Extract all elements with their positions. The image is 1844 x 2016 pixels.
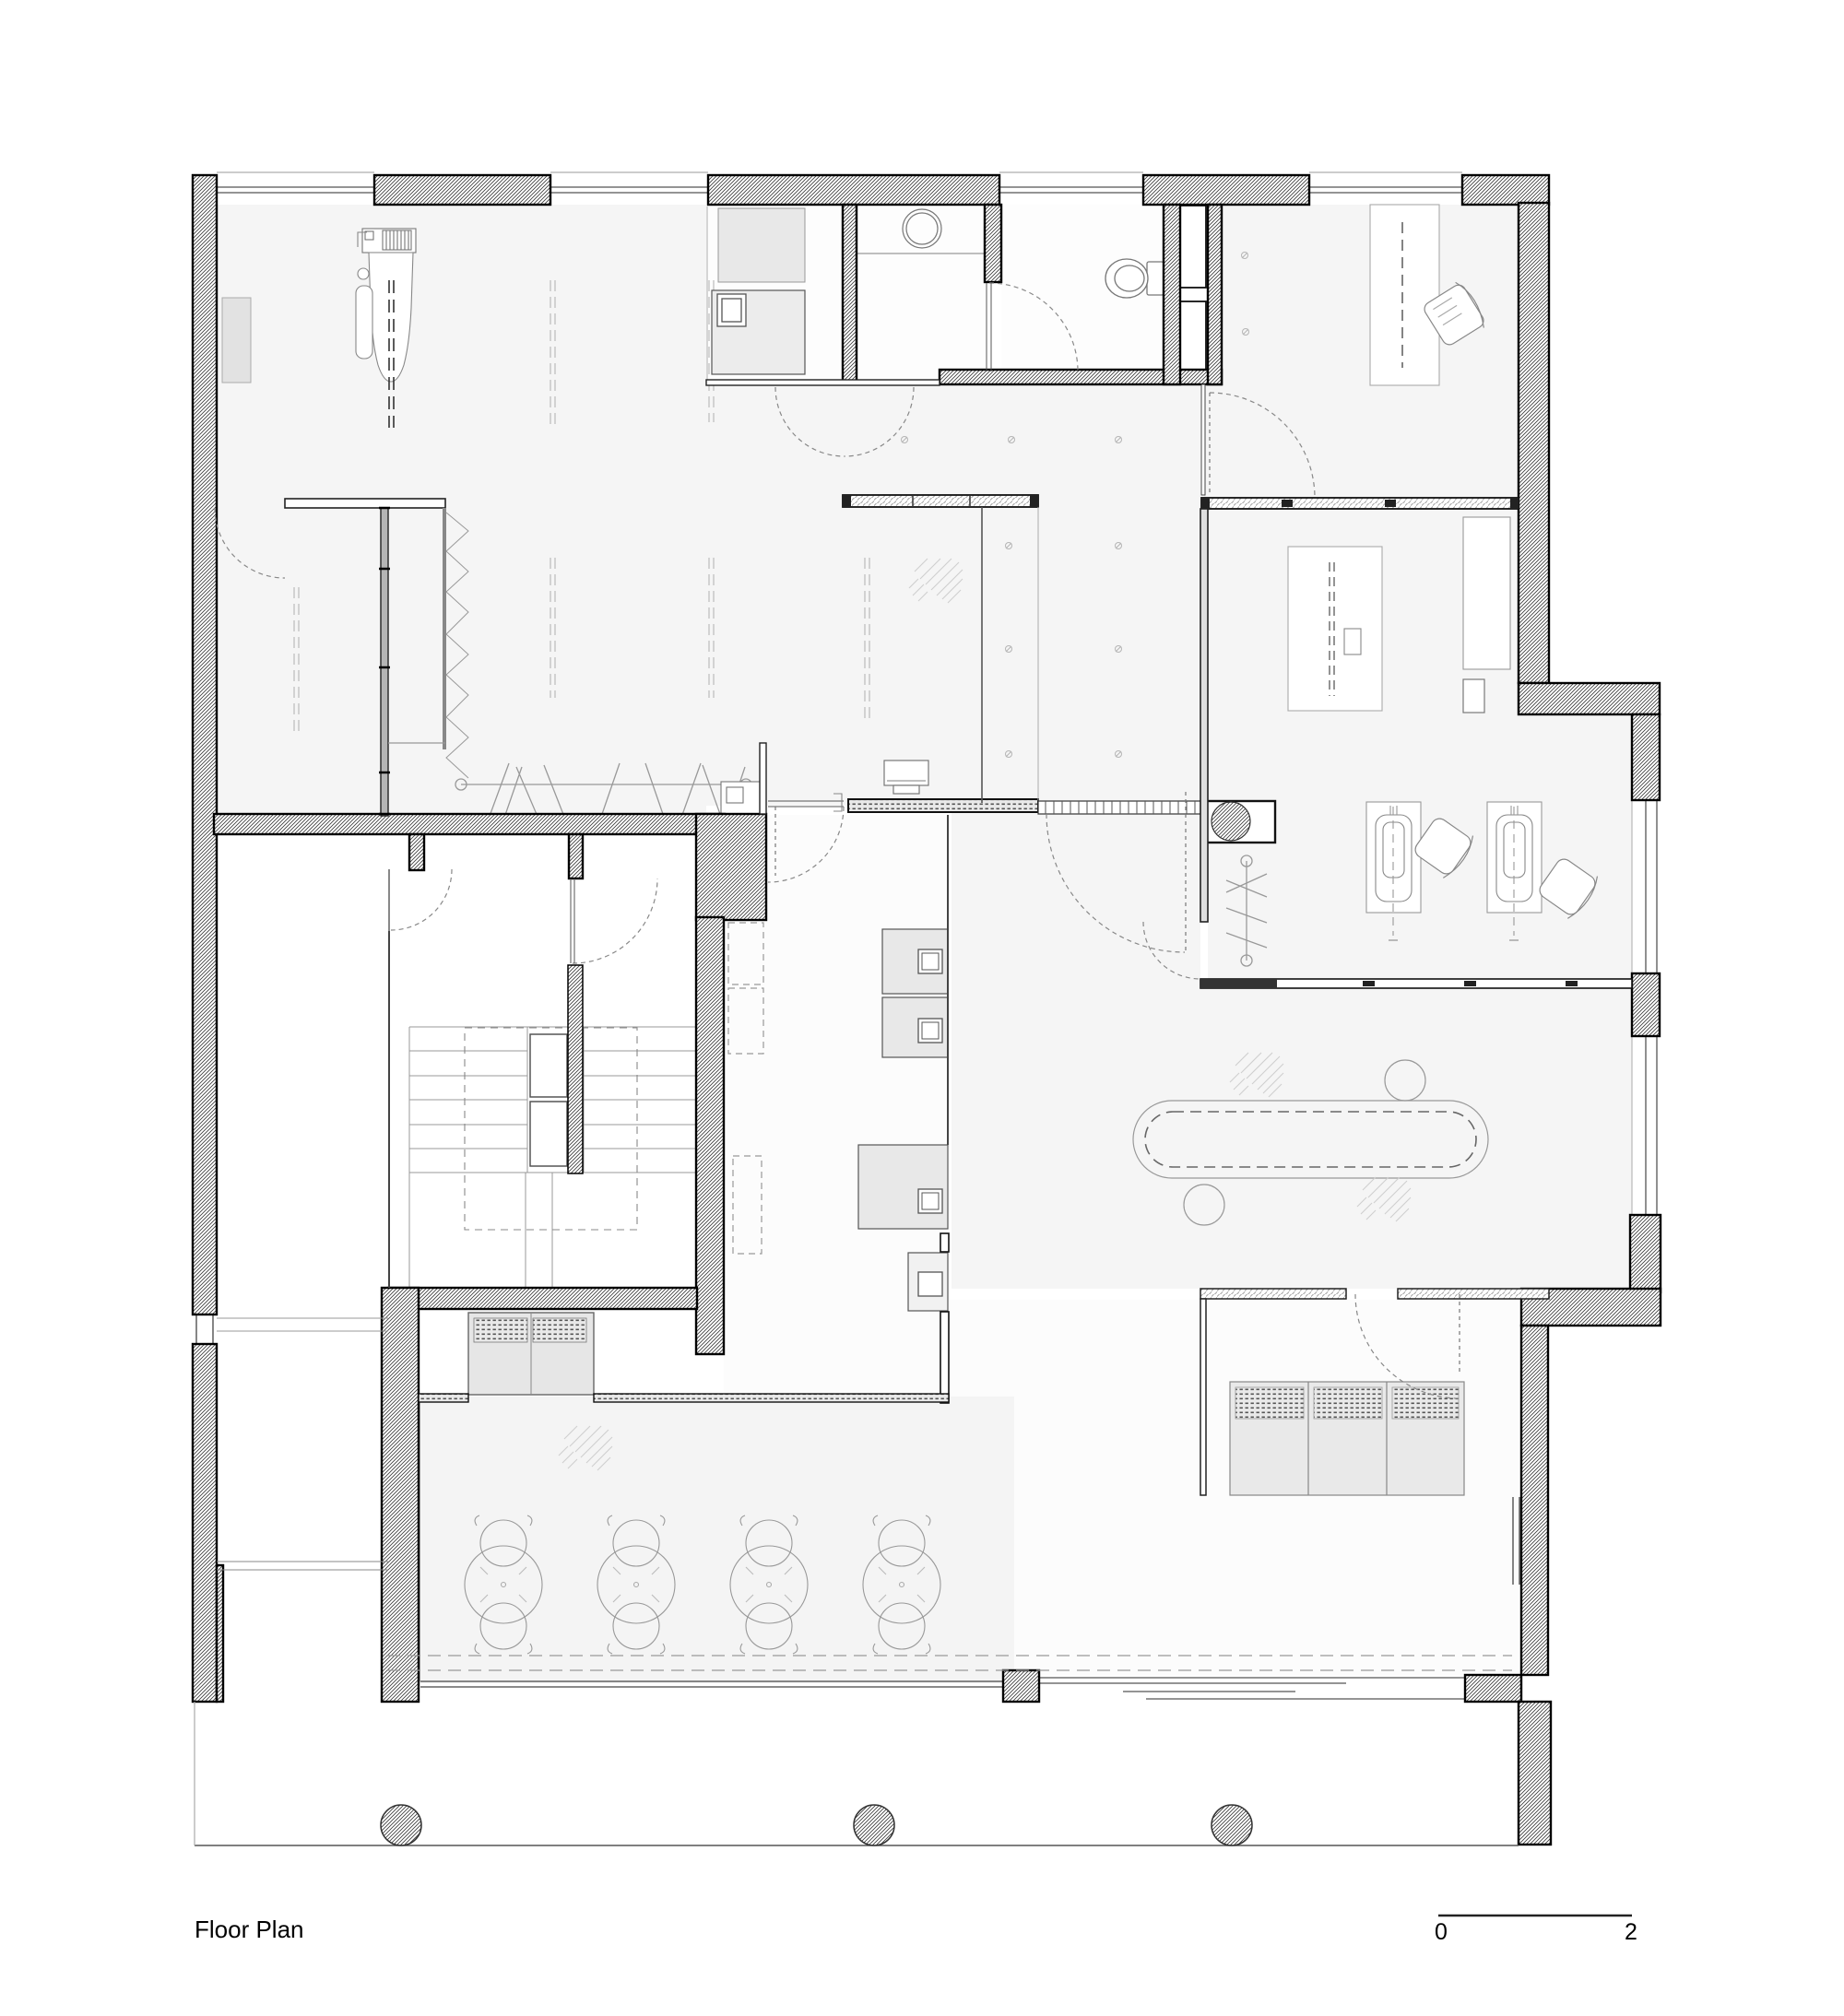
svg-text:2: 2 [1625, 1919, 1637, 1945]
svg-text:0: 0 [1435, 1919, 1448, 1945]
svg-text:Floor Plan: Floor Plan [195, 1916, 304, 1943]
